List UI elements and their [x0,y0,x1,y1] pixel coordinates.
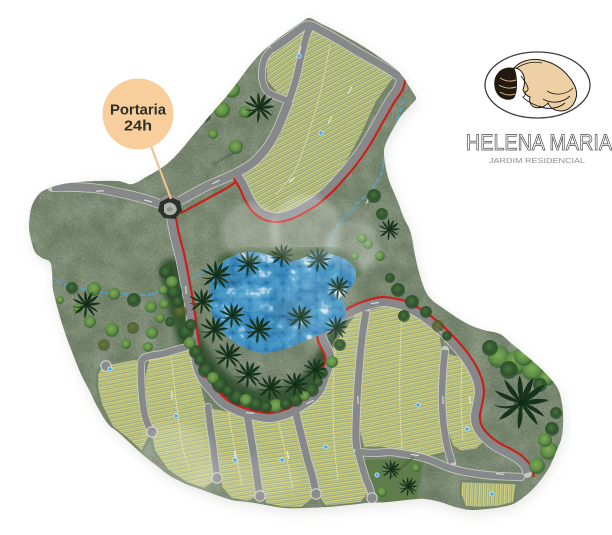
svg-text:C 1698: C 1698 [429,139,436,150]
svg-text:JARDIM RESIDENCIAL: JARDIM RESIDENCIAL [489,156,585,165]
svg-text:HELENA MARIA: HELENA MARIA [466,130,612,155]
svg-text:AREA VERDE: AREA VERDE [59,172,80,183]
svg-text:24h: 24h [124,119,152,135]
svg-text:Portaria: Portaria [110,103,167,119]
